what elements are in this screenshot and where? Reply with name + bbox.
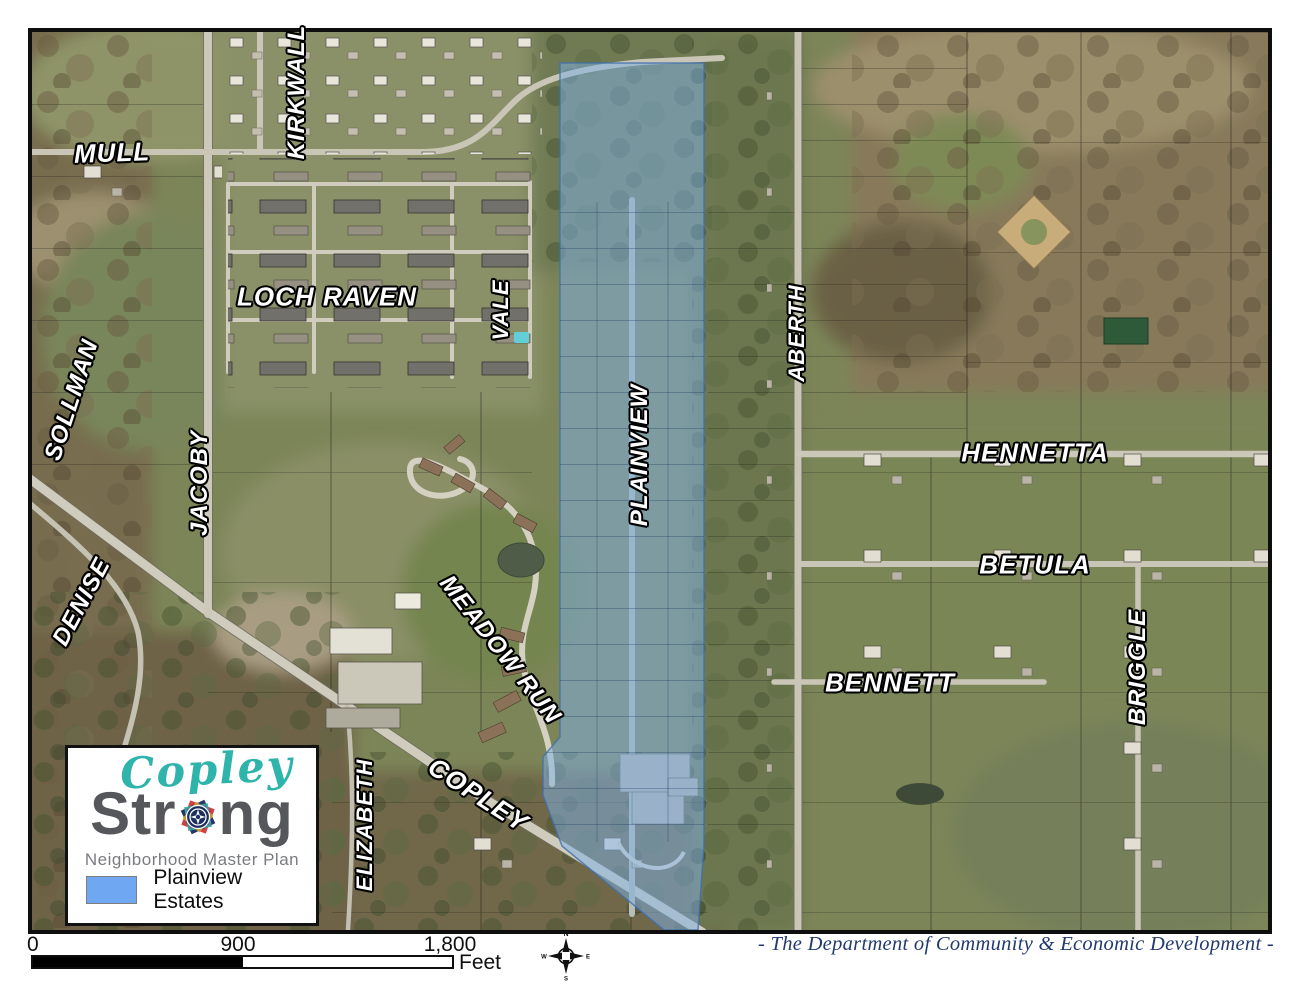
compass-n: N <box>563 931 568 938</box>
north-arrow: N E S W <box>540 929 592 986</box>
legend-row: Plainview Estates <box>86 866 316 914</box>
pond-small <box>896 783 944 805</box>
page: { "map": { "street_labels": [ {"text": "… <box>0 0 1300 1004</box>
street-label-briggle: BRIGGLE <box>1124 609 1152 725</box>
street-label-aberth: ABERTH <box>784 284 810 381</box>
loch-raven-townhomes <box>228 158 538 388</box>
street-label-plainview: PLAINVIEW <box>626 384 654 526</box>
street-label-kirkwall: KIRKWALL <box>283 25 311 160</box>
department-credit: - The Department of Community & Economic… <box>758 933 1274 956</box>
legend-label: Plainview Estates <box>153 866 316 914</box>
legend-swatch-plainview <box>86 876 137 904</box>
logo-strong-pre: Str <box>90 780 176 847</box>
scale-tick-900: 900 <box>220 933 255 957</box>
pond <box>498 543 544 577</box>
green-roof-building <box>1104 318 1148 344</box>
scale-bar <box>31 955 454 969</box>
scale-bar-filled-half <box>33 957 243 967</box>
street-label-loch-raven: LOCH RAVEN <box>237 282 417 313</box>
logo-strong-post: ng <box>219 780 294 847</box>
scale-unit-label: Feet <box>459 951 501 975</box>
street-label-mull: MULL <box>73 136 150 170</box>
street-label-elizabeth: ELIZABETH <box>352 759 378 891</box>
compass-s: S <box>564 977 568 982</box>
street-label-betula: BETULA <box>979 550 1090 581</box>
street-label-vale: VALE <box>488 279 514 340</box>
street-label-jacoby: JACOBY <box>186 430 214 536</box>
logo-legend-panel: Copley Str ng Neighborhood Master Plan P… <box>65 745 319 926</box>
pool <box>514 332 529 343</box>
compass-e: E <box>586 955 590 961</box>
scale-tick-0: 0 <box>27 933 39 957</box>
compass-w: W <box>541 955 547 961</box>
street-label-hennetta: HENNETTA <box>961 438 1109 469</box>
compass-logo-icon <box>174 791 222 851</box>
top-suburb-houses <box>222 32 542 154</box>
map-canvas: MULL KIRKWALL LOCH RAVEN VALE SOLLMAN JA… <box>28 28 1272 934</box>
street-label-bennett: BENNETT <box>825 668 955 699</box>
logo-strong-wordmark: Str ng <box>68 784 316 851</box>
